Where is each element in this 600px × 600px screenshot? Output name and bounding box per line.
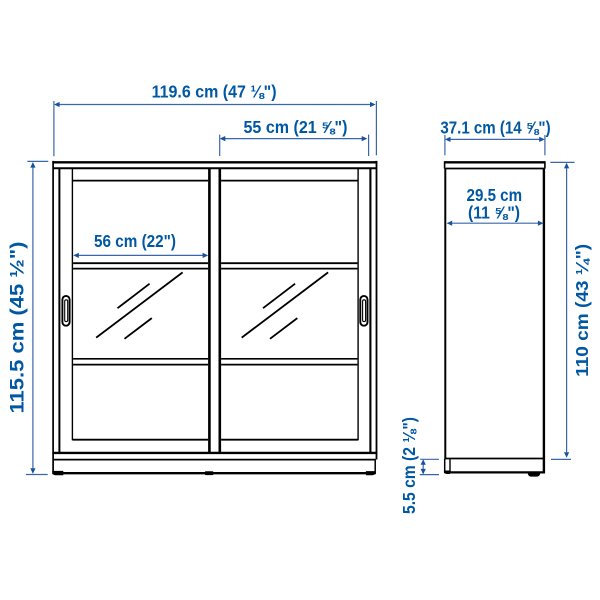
svg-text:37.1 cm (14 ⅝"): 37.1 cm (14 ⅝") [440, 117, 550, 137]
svg-text:(11 ⅝"): (11 ⅝") [468, 202, 520, 222]
svg-text:110 cm (43 ¼"): 110 cm (43 ¼") [572, 244, 592, 377]
svg-text:56 cm (22"): 56 cm (22") [94, 231, 176, 251]
svg-text:119.6 cm (47 ⅛"): 119.6 cm (47 ⅛") [152, 82, 277, 102]
svg-text:55 cm (21 ⅝"): 55 cm (21 ⅝") [244, 117, 348, 137]
svg-text:115.5 cm (45 ½"): 115.5 cm (45 ½") [8, 242, 29, 414]
svg-text:5.5 cm (2 ⅛"): 5.5 cm (2 ⅛") [399, 417, 419, 514]
